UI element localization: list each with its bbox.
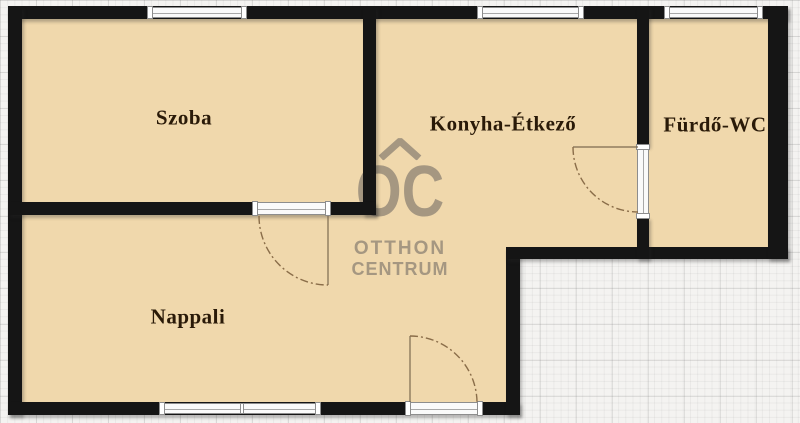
room-label-konyha-etkezo: Konyha-Étkező — [430, 112, 577, 137]
window-konyha-top — [478, 7, 583, 18]
door-opening-szoba-nappali — [253, 202, 330, 215]
room-label-nappali: Nappali — [151, 305, 226, 330]
wall-right-nappali-notch — [506, 247, 520, 415]
wall-konyha-furdo-lower — [637, 217, 649, 259]
floorplan-canvas: OC OTTHON CENTRUM Szoba — [0, 0, 800, 423]
room-label-furdo-wc: Fürdő-WC — [663, 113, 766, 138]
wall-right — [768, 6, 788, 259]
wall-konyha-furdo-upper — [637, 6, 649, 146]
wall-szoba-konyha — [363, 6, 376, 215]
room-label-szoba: Szoba — [156, 106, 212, 131]
window-nappali-bottom — [160, 403, 320, 414]
door-opening-konyha-furdo — [637, 145, 649, 218]
watermark-line1: OTTHON — [354, 239, 446, 259]
watermark-line2: CENTRUM — [352, 259, 449, 280]
window-szoba-top — [148, 7, 246, 18]
window-furdo-top — [665, 7, 762, 18]
door-opening-nappali-entrance — [406, 402, 482, 415]
